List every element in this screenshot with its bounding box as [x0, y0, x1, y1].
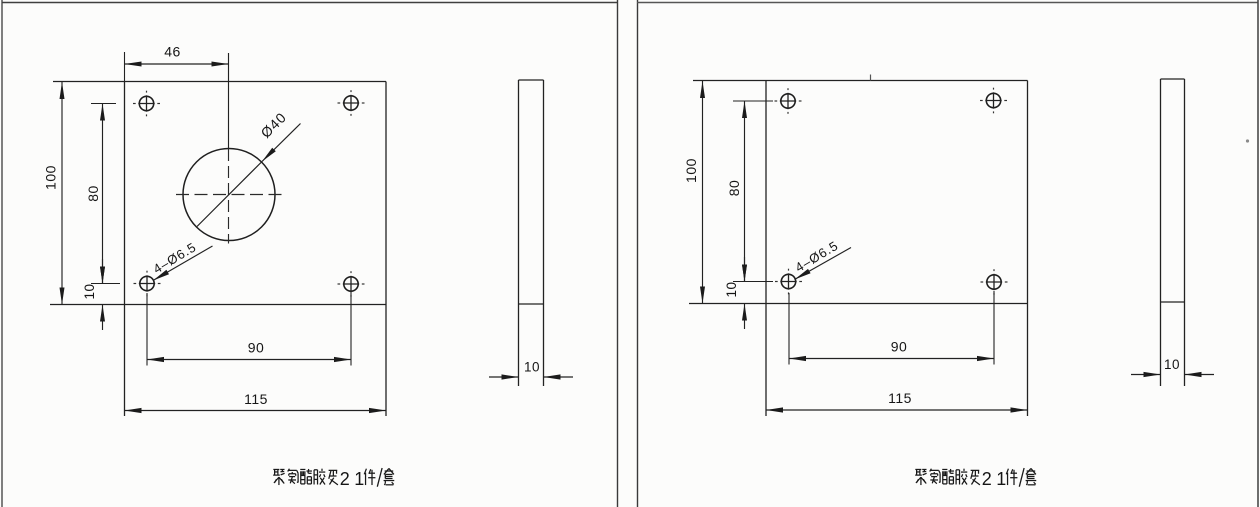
svg-text:2: 2 [340, 469, 350, 489]
svg-text:10: 10 [1164, 357, 1180, 372]
svg-text:10: 10 [82, 283, 97, 299]
svg-text:115: 115 [888, 390, 912, 406]
svg-text:10: 10 [524, 360, 540, 375]
svg-text:90: 90 [891, 339, 908, 355]
svg-text:115: 115 [244, 391, 268, 407]
svg-text:1: 1 [354, 469, 364, 489]
svg-text:1: 1 [996, 469, 1006, 489]
svg-text:100: 100 [43, 165, 59, 190]
svg-text:100: 100 [683, 158, 699, 183]
svg-text:10: 10 [724, 281, 739, 297]
svg-text:80: 80 [85, 185, 101, 202]
svg-text:80: 80 [726, 180, 742, 197]
svg-text:2: 2 [982, 469, 992, 489]
svg-text:46: 46 [164, 44, 181, 60]
svg-text:90: 90 [248, 340, 265, 356]
